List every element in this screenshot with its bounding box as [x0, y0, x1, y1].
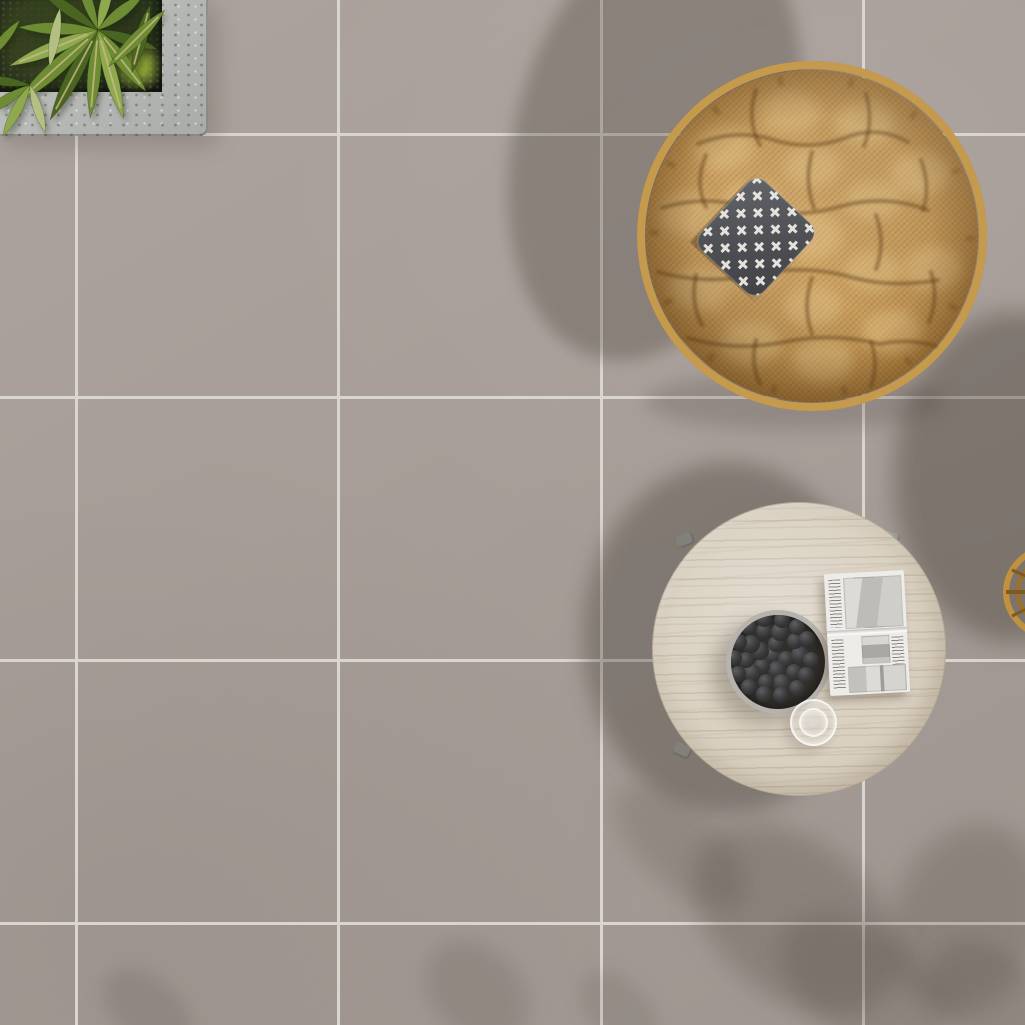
plant-frond-shadow: [404, 919, 550, 1025]
side-chair-graphic: [1002, 542, 1025, 642]
floor: [0, 0, 1025, 1025]
plant-frond-shadow: [864, 802, 1025, 1025]
plant-frond-shadow: [656, 785, 936, 1025]
olive: [803, 652, 819, 668]
olive: [756, 686, 772, 702]
olive: [799, 631, 815, 647]
grout-line-vertical: [600, 0, 603, 1025]
bromeliad-plants: [0, 0, 235, 170]
plant-frond-shadow: [593, 763, 768, 931]
olive: [730, 666, 746, 682]
plant-frond-shadow: [565, 957, 673, 1025]
magazine-fold: [827, 627, 907, 636]
olive: [741, 619, 757, 635]
magazine: [824, 570, 910, 696]
olive: [756, 611, 772, 627]
magazine-text-column: [828, 579, 842, 628]
magazine-photo-bottom: [848, 664, 907, 693]
olive: [731, 634, 747, 650]
glass-rim: [799, 708, 828, 737]
plant-frond-shadow: [754, 886, 977, 1025]
magazine-text-column: [831, 639, 846, 690]
olive: [773, 687, 789, 703]
grout-line-horizontal: [0, 922, 1025, 925]
olive: [726, 650, 742, 666]
plant-leaf: [0, 20, 20, 62]
plant-leaf: [30, 85, 46, 133]
grout-line-vertical: [337, 0, 340, 1025]
plant-frond-shadow: [910, 917, 1025, 1025]
magazine-photo-top: [843, 575, 904, 629]
table-frame-tab: [675, 532, 694, 548]
magazine-photo-small: [861, 635, 890, 664]
olive: [741, 679, 757, 695]
olive: [789, 680, 805, 696]
side-chair-partial: [1002, 542, 1025, 642]
plant-frond-shadow: [87, 952, 209, 1025]
drinking-glass: [790, 699, 837, 746]
plant-leaf: [0, 76, 30, 87]
olive: [774, 612, 790, 628]
